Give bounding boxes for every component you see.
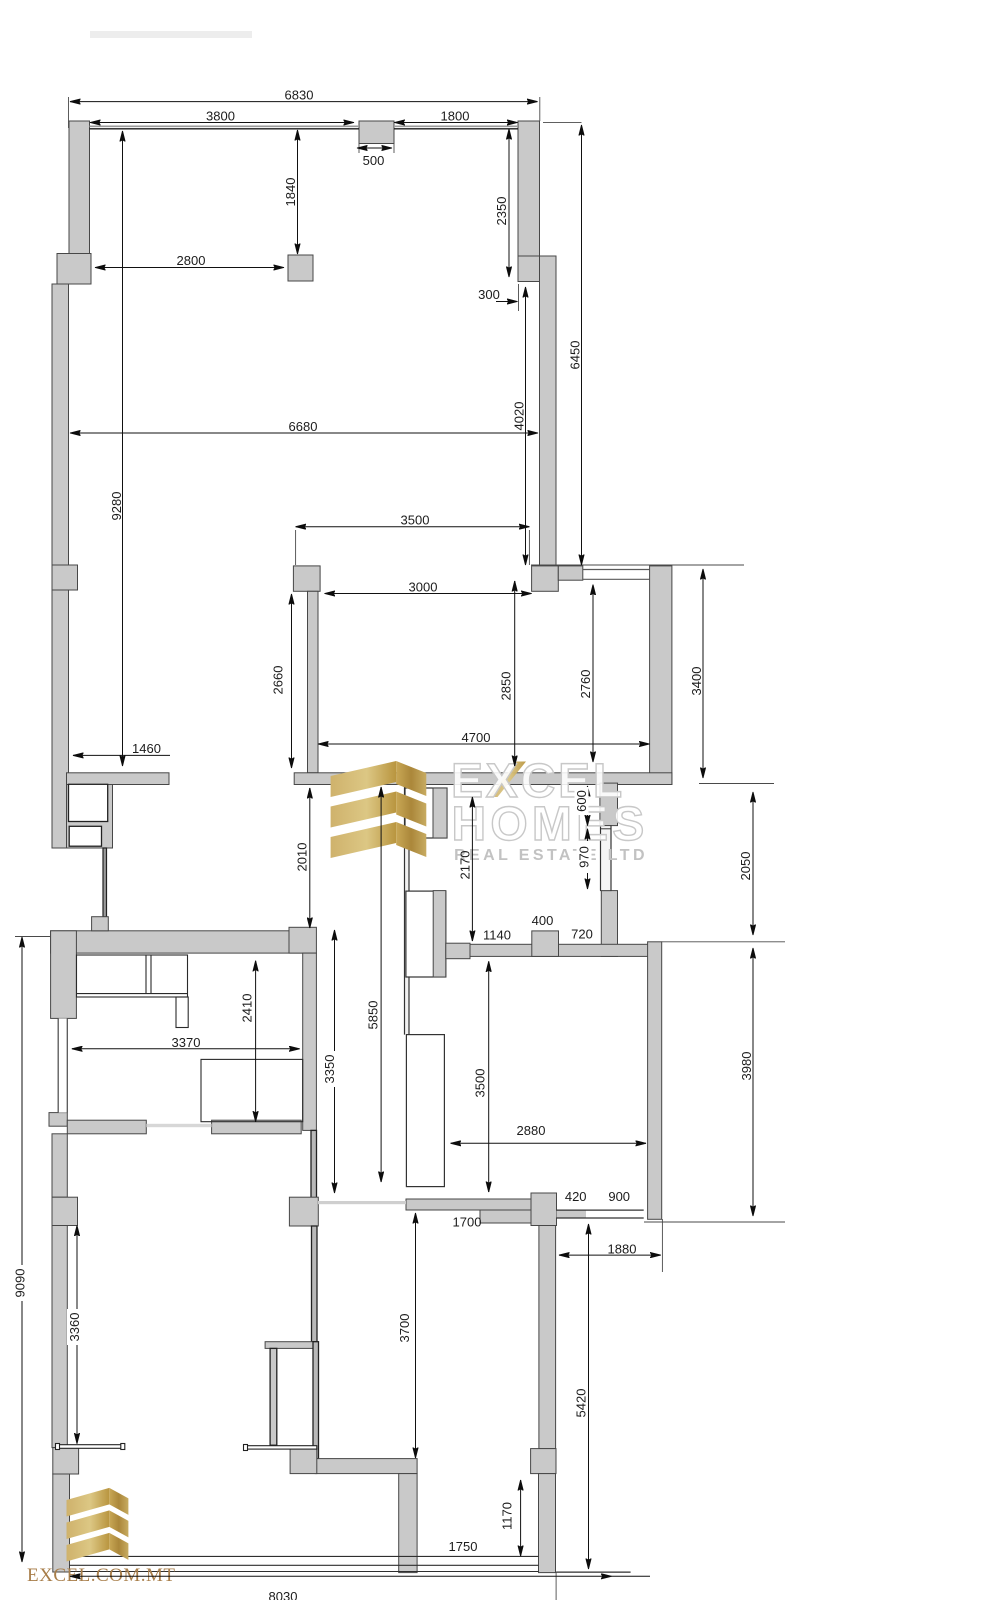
svg-text:2050: 2050	[738, 852, 753, 881]
svg-text:3500: 3500	[473, 1069, 488, 1098]
svg-text:900: 900	[608, 1189, 630, 1204]
svg-text:3360: 3360	[67, 1313, 82, 1342]
svg-text:8030: 8030	[269, 1589, 298, 1600]
svg-text:720: 720	[571, 927, 593, 942]
svg-text:3800: 3800	[206, 109, 235, 124]
svg-text:3400: 3400	[689, 667, 704, 696]
svg-text:1170: 1170	[500, 1502, 515, 1530]
svg-text:1140: 1140	[483, 928, 511, 943]
svg-text:1460: 1460	[132, 741, 161, 756]
svg-text:1800: 1800	[441, 109, 470, 124]
svg-text:EXCEL.COM.MT: EXCEL.COM.MT	[27, 1565, 176, 1586]
svg-text:2410: 2410	[240, 994, 255, 1023]
svg-text:4700: 4700	[462, 730, 491, 745]
svg-text:2880: 2880	[517, 1123, 546, 1138]
svg-text:400: 400	[532, 913, 554, 928]
svg-text:2010: 2010	[295, 843, 310, 872]
svg-text:HOMES: HOMES	[451, 798, 648, 851]
svg-text:2170: 2170	[458, 851, 473, 880]
svg-text:500: 500	[363, 153, 385, 168]
svg-text:1750: 1750	[449, 1539, 478, 1554]
svg-text:600: 600	[574, 790, 589, 812]
svg-text:2760: 2760	[578, 670, 593, 699]
svg-text:6830: 6830	[285, 88, 314, 103]
svg-text:9090: 9090	[13, 1269, 28, 1298]
svg-text:4020: 4020	[512, 402, 527, 431]
svg-text:1880: 1880	[608, 1242, 637, 1257]
svg-text:300: 300	[478, 287, 500, 302]
svg-text:5850: 5850	[366, 1001, 381, 1030]
svg-text:2850: 2850	[499, 672, 514, 701]
svg-text:1840: 1840	[283, 178, 298, 207]
svg-text:3700: 3700	[397, 1314, 412, 1343]
svg-text:3980: 3980	[739, 1052, 754, 1081]
svg-text:3370: 3370	[172, 1035, 201, 1050]
svg-text:5420: 5420	[574, 1389, 589, 1418]
svg-text:970: 970	[577, 846, 592, 868]
svg-text:6680: 6680	[289, 419, 318, 434]
svg-text:2350: 2350	[494, 197, 509, 226]
svg-text:REAL ESTATE LTD: REAL ESTATE LTD	[454, 847, 648, 864]
svg-text:3500: 3500	[401, 513, 430, 528]
svg-text:2660: 2660	[271, 666, 286, 695]
svg-text:9280: 9280	[109, 492, 124, 521]
svg-text:2800: 2800	[177, 253, 206, 268]
svg-text:1700: 1700	[453, 1215, 482, 1230]
svg-text:6450: 6450	[568, 341, 583, 370]
svg-text:3000: 3000	[409, 580, 438, 595]
svg-text:420: 420	[565, 1189, 587, 1204]
svg-text:3350: 3350	[322, 1055, 337, 1084]
